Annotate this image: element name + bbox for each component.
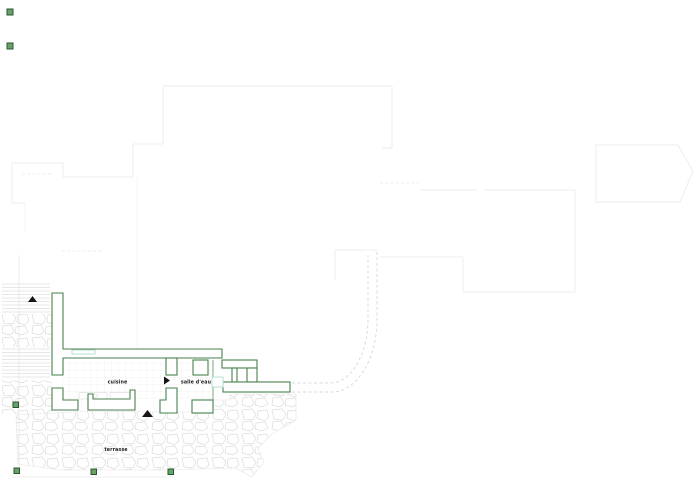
bathroom-window: [212, 377, 223, 387]
kitchen-counter: [79, 393, 130, 400]
site-plan-drawing: cuisine salle d'eau terrasse: [0, 0, 700, 500]
wall-step-connector: [247, 368, 257, 382]
kitchen-window: [72, 350, 95, 354]
wall-bathroom-south: [192, 400, 213, 413]
terrace-label: terrasse: [104, 447, 128, 453]
kitchen-label: cuisine: [108, 380, 128, 386]
wall-step-connector-small: [232, 368, 237, 382]
wall-step-lower: [223, 382, 290, 392]
outbuilding-outline: [596, 145, 693, 202]
wall-step-upper: [222, 360, 257, 368]
stone-patch-lower: [2, 380, 52, 414]
survey-marker: [7, 9, 13, 15]
entry-triangle-upper-icon: [28, 296, 37, 302]
survey-marker: [168, 469, 174, 475]
wall-partition-upper: [166, 358, 177, 375]
stone-patch-upper: [2, 314, 52, 347]
survey-marker: [14, 468, 20, 474]
dashed-retaining-wall-arcs: [292, 250, 377, 392]
bathroom-label: salle d'eau: [181, 380, 212, 386]
survey-marker: [7, 43, 13, 49]
architectural-floor-plan: cuisine salle d'eau terrasse: [0, 0, 700, 500]
duct-box: [193, 360, 208, 375]
survey-marker: [91, 469, 97, 475]
upper-storey-outline: [12, 86, 693, 348]
survey-marker: [13, 402, 19, 408]
